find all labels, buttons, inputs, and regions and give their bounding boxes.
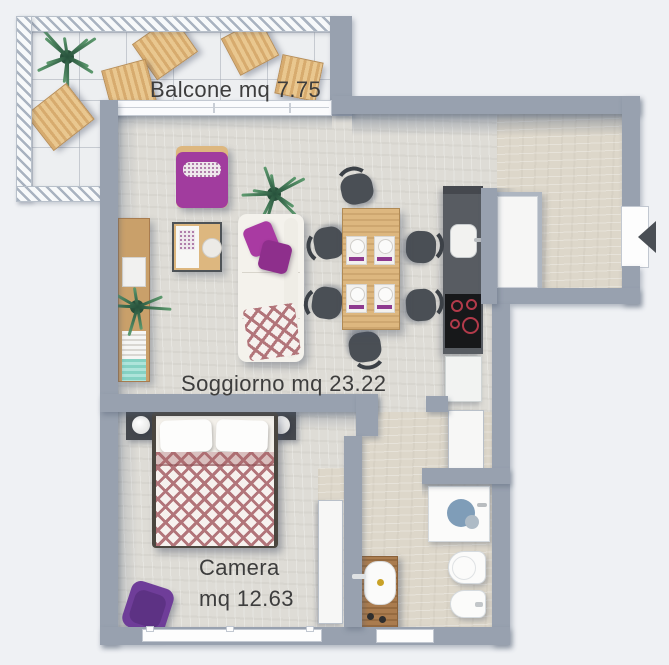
vanity-knob: [379, 616, 386, 623]
entry-closet-door: [497, 196, 538, 288]
bidet: [450, 590, 486, 618]
vanity-faucet: [352, 574, 366, 579]
outer-wall-right-upper: [622, 96, 640, 208]
shower-faucet: [477, 503, 487, 507]
shower-tray: [428, 486, 490, 542]
entrance-arrow-icon: [638, 221, 656, 253]
bed: [152, 412, 278, 548]
cooktop-burner: [466, 299, 477, 310]
bedroom-label-line2: mq 12.63: [199, 583, 294, 614]
living-room-label: Soggiorno mq 23.22: [181, 368, 386, 399]
floorplan-canvas: Balcone mq 7.75: [0, 0, 669, 665]
bed-pillow: [215, 419, 268, 453]
vanity-knob: [367, 613, 374, 620]
cooktop-burner: [451, 300, 463, 312]
bathroom-vanity: [360, 556, 398, 628]
armchair: [176, 146, 228, 208]
bedroom-label-line1: Camera: [199, 552, 294, 583]
plant-frond: [66, 56, 93, 74]
window-post: [306, 626, 314, 632]
bedroom-door-gap-floor: [318, 468, 344, 502]
window-post: [226, 626, 234, 632]
dining-chair: [399, 283, 444, 328]
coffee-table-napkin: [179, 230, 195, 250]
placemat: [374, 236, 395, 265]
dining-chair: [341, 323, 388, 370]
placemat: [346, 284, 367, 313]
armchair-pillow: [183, 162, 221, 177]
cooktop-burner: [462, 317, 479, 334]
kitchen-appliance: [445, 356, 482, 402]
kitchen-stub-wall: [426, 396, 448, 412]
chair-seat: [405, 230, 436, 263]
sofa-throw-blanket: [243, 303, 302, 362]
duvet: [156, 452, 274, 546]
bathroom-window: [376, 629, 434, 643]
coffee-table-plate: [202, 238, 222, 258]
coffee-table: [172, 222, 222, 272]
dining-chair: [332, 164, 382, 214]
placemat: [374, 284, 395, 313]
bedroom-chair-seat: [127, 588, 168, 630]
balcony-railing: [16, 16, 334, 32]
sofa: [238, 214, 304, 362]
duvet-fold: [156, 452, 274, 466]
plant-frond: [127, 307, 139, 337]
outer-wall-top: [332, 96, 640, 114]
placemat: [346, 236, 367, 265]
entry-bottom-wall: [492, 288, 640, 304]
armchair-cushion: [176, 152, 228, 208]
outer-wall-left: [100, 100, 118, 645]
sideboard-plant: [112, 282, 162, 332]
basin-drain: [377, 579, 384, 586]
sideboard-books: [122, 331, 146, 359]
toilet: [448, 551, 486, 584]
shower-drain: [465, 515, 479, 529]
balcony-railing: [16, 16, 32, 202]
bedroom-label: Camera mq 12.63: [199, 552, 294, 614]
chair-seat: [310, 285, 344, 321]
bathroom-top-wall: [422, 468, 510, 484]
plant-frond: [66, 37, 96, 58]
bed-pillow: [159, 419, 212, 453]
balcony-railing: [16, 186, 102, 202]
bidet-faucet: [475, 602, 483, 607]
bedroom-sliding-door: [318, 500, 343, 624]
toilet-bowl: [452, 556, 476, 580]
bedroom-wall-post: [356, 394, 378, 436]
sideboard-teal-box: [122, 359, 146, 381]
dining-chair: [399, 225, 442, 268]
cooktop-burner: [450, 319, 460, 329]
chair-seat: [405, 288, 437, 322]
bedroom-east-wall: [344, 436, 362, 627]
balcony-label: Balcone mq 7.75: [150, 74, 321, 105]
window-post: [146, 626, 154, 632]
kitchen-sink: [450, 224, 477, 258]
kitchen-wall: [481, 188, 497, 304]
nightstand-lamp: [132, 416, 150, 434]
